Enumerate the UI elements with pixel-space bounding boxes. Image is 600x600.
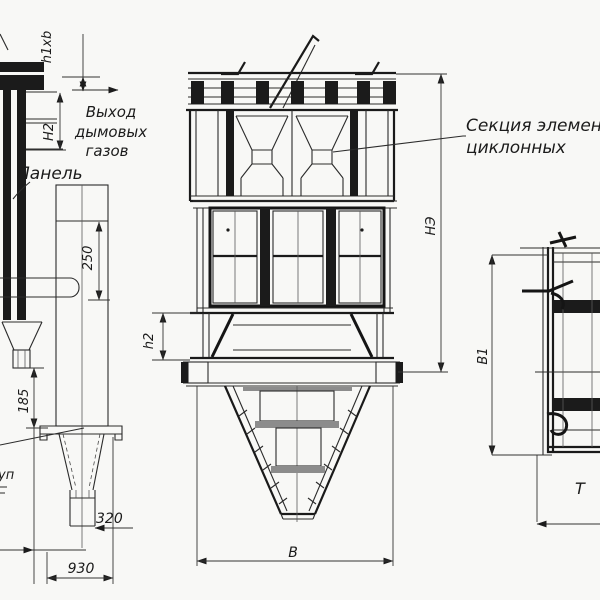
edge-fragment-line (0, 34, 8, 50)
center-view-dimensions (152, 74, 466, 566)
cutoff-text-strokes (0, 487, 7, 493)
right-body (520, 232, 600, 455)
drawing-canvas: h1xb H2 Выход дымовых газов Панель 250 1… (0, 0, 600, 600)
dim-250-label: 250 (81, 246, 96, 271)
cyclone-section-label-2: циклонных (466, 138, 567, 158)
top-railing (186, 36, 398, 110)
dim-B-label: В (288, 545, 298, 561)
dim-h2-label: h2 (142, 333, 157, 350)
outlet-duct-side (0, 62, 63, 320)
cyclone-element-2 (296, 116, 348, 196)
lower-hook (547, 414, 567, 435)
center-view: h2 В НЭ Секция элемен циклонных (142, 36, 600, 566)
panel-label: Панель (17, 164, 83, 184)
dim-H2-label: H2 (42, 123, 57, 141)
leader-line (0, 428, 84, 445)
dim-320-label: 320 (96, 511, 123, 527)
dim-930-label: 930 (68, 561, 95, 577)
dim-B1-label: В1 (476, 347, 491, 364)
window-section (190, 201, 397, 313)
cyclone-element-1 (236, 116, 288, 196)
side-panel (0, 185, 108, 548)
pyramidal-hopper (225, 386, 370, 522)
cyclone-section (190, 110, 394, 201)
gas-outlet-label-1: Выход (86, 103, 137, 121)
top-clamp (550, 232, 576, 247)
left-view: h1xb H2 Выход дымовых газов Панель 250 1… (0, 31, 147, 584)
right-edge-fragment: Т (575, 479, 586, 498)
gas-outlet-label-3: газов (85, 142, 128, 160)
cyclone-section-label-1: Секция элемен (466, 116, 600, 136)
dim-NE-label: НЭ (424, 217, 439, 236)
dim-185-label: 185 (17, 389, 32, 414)
hopper-chute-lower (276, 428, 321, 466)
side-hopper (0, 322, 122, 526)
support-frame (181, 313, 403, 386)
right-view: В1 Т (476, 232, 600, 524)
technical-drawing: h1xb H2 Выход дымовых газов Панель 250 1… (0, 0, 600, 600)
dim-h1xb-label: h1xb (40, 31, 55, 63)
gas-outlet-label-2: дымовых (74, 123, 147, 141)
left-edge-fragment: уп (0, 468, 15, 483)
side-pipe (0, 278, 79, 297)
